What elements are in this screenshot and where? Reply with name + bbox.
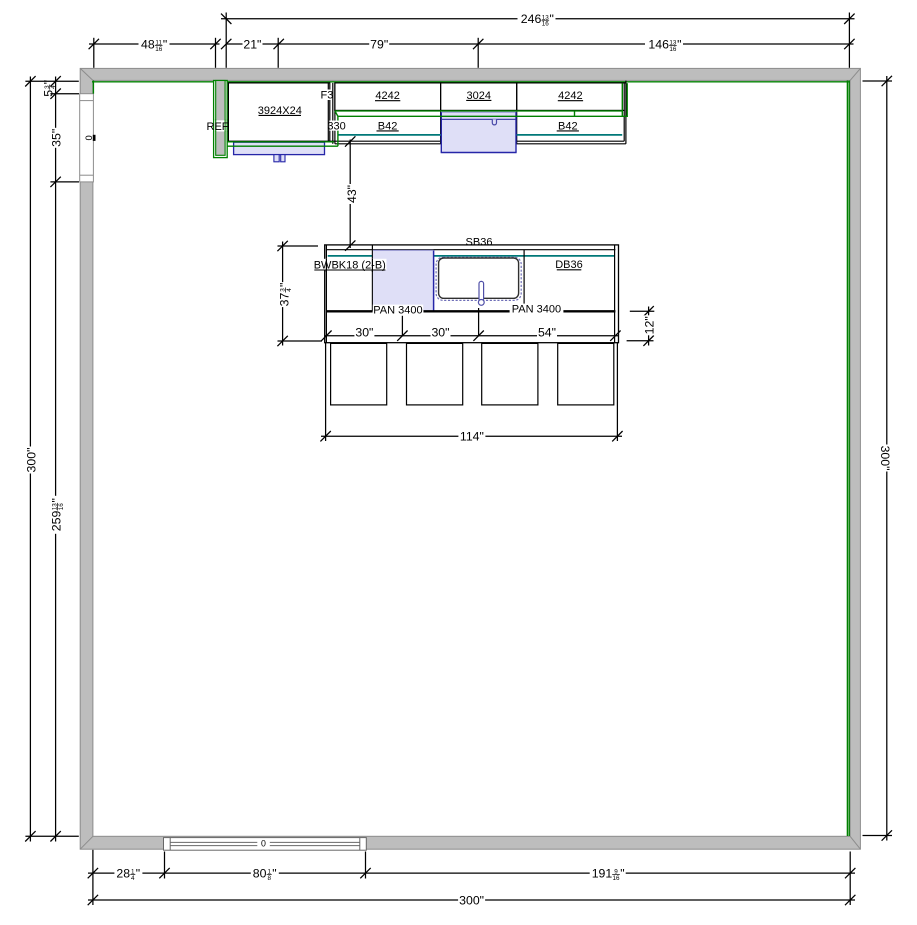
svg-text:80: 80	[253, 866, 267, 880]
svg-text:79": 79"	[370, 37, 388, 51]
svg-text:16: 16	[58, 503, 65, 511]
svg-text:21": 21"	[243, 37, 261, 51]
svg-text:37: 37	[277, 293, 291, 307]
svg-text:": "	[272, 866, 276, 880]
svg-text:4: 4	[286, 288, 293, 292]
svg-text:4: 4	[131, 875, 135, 882]
svg-text:48: 48	[141, 37, 155, 51]
svg-text:": "	[620, 866, 624, 880]
svg-text:": "	[677, 37, 681, 51]
svg-text:54": 54"	[538, 326, 556, 340]
svg-text:0: 0	[84, 135, 95, 140]
svg-text:114": 114"	[460, 430, 484, 444]
svg-text:12": 12"	[642, 316, 656, 334]
svg-text:259: 259	[49, 511, 63, 532]
svg-text:": "	[550, 12, 554, 26]
svg-text:REF: REF	[207, 121, 229, 133]
svg-text:F3: F3	[320, 90, 333, 102]
svg-text:": "	[42, 80, 56, 84]
svg-text:": "	[136, 866, 140, 880]
svg-text:191: 191	[592, 866, 613, 880]
svg-text:30": 30"	[355, 326, 373, 340]
svg-text:": "	[49, 498, 63, 502]
svg-text:16: 16	[155, 46, 163, 53]
svg-text:": "	[163, 37, 167, 51]
svg-text:5: 5	[42, 90, 56, 97]
svg-text:": "	[277, 283, 291, 287]
svg-text:246: 246	[521, 12, 542, 26]
svg-text:35": 35"	[49, 129, 63, 147]
svg-text:300": 300"	[459, 893, 484, 907]
svg-text:SB36: SB36	[466, 237, 493, 249]
svg-text:8: 8	[267, 875, 271, 882]
svg-text:16: 16	[612, 875, 620, 882]
svg-text:43": 43"	[345, 185, 359, 203]
svg-text:146: 146	[648, 37, 669, 51]
svg-text:PAN 3400: PAN 3400	[373, 304, 422, 316]
svg-text:4: 4	[50, 85, 57, 89]
svg-text:16: 16	[669, 46, 677, 53]
svg-text:300": 300"	[24, 448, 38, 473]
svg-text:330: 330	[327, 121, 345, 133]
svg-text:0: 0	[261, 839, 266, 849]
svg-text:PAN 3400: PAN 3400	[512, 303, 561, 315]
svg-text:28: 28	[116, 866, 130, 880]
svg-text:30": 30"	[431, 326, 449, 340]
svg-text:300": 300"	[878, 446, 892, 471]
svg-text:16: 16	[542, 21, 550, 28]
